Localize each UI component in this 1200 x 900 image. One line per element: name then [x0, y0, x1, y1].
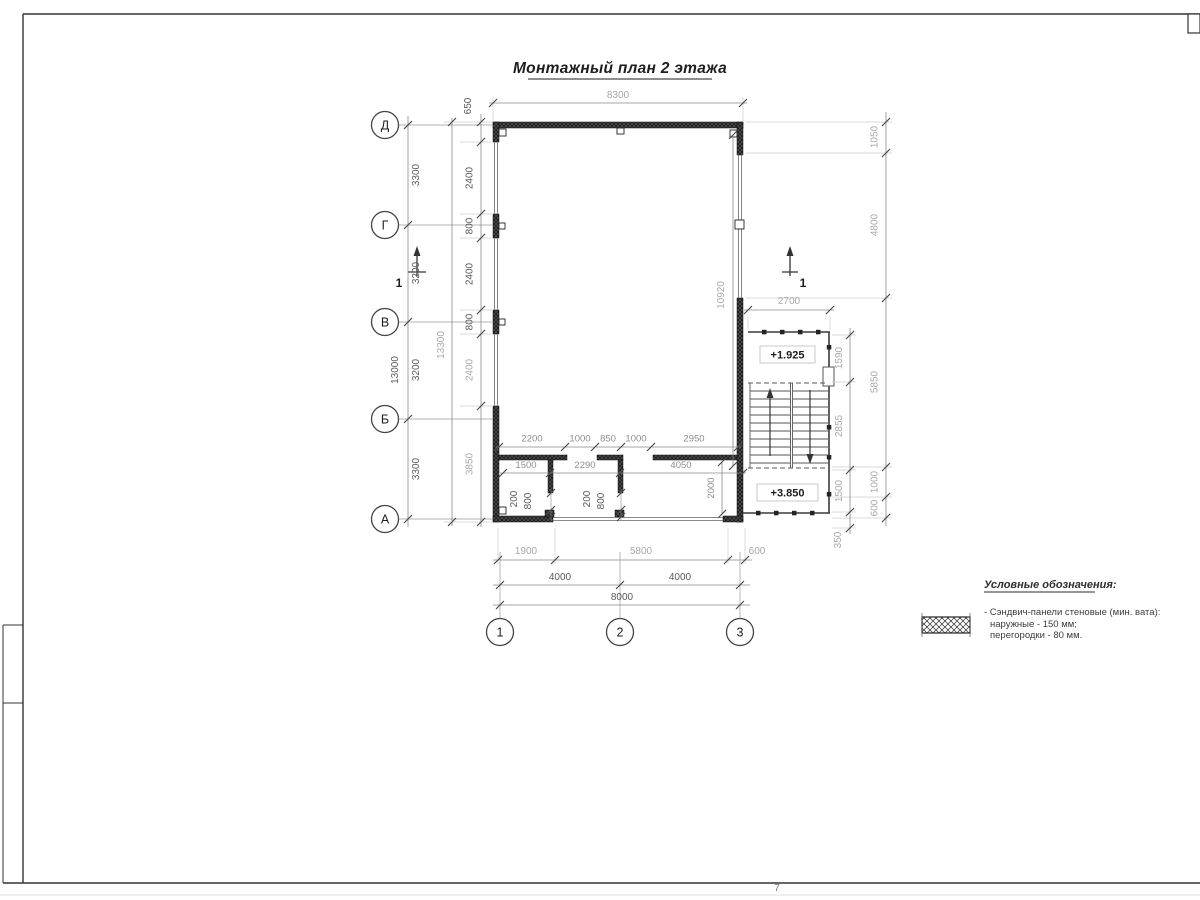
partition-v-right [618, 460, 623, 493]
section-label-left: 1 [396, 276, 403, 290]
dim-stair-350: 350 [833, 531, 844, 548]
drawing-title: Монтажный план 2 этажа [513, 60, 727, 79]
bottom-wall-left [493, 516, 553, 522]
ext-right-outer [746, 122, 892, 518]
dim-seg-2400c: 2400 [465, 358, 476, 381]
section-arrow-head-right [787, 246, 794, 256]
dim-stair-1590: 1590 [834, 346, 845, 369]
dim-stair-1500: 1500 [834, 479, 845, 502]
top-wall [493, 122, 743, 128]
right-wall-lower [737, 298, 743, 522]
dim-int-1000b: 1000 [625, 434, 646, 445]
legend: Условные обозначения: - Сэндвич-панели с… [922, 579, 1160, 641]
dim-right-1050: 1050 [870, 125, 881, 148]
axis-row-v: В [381, 316, 389, 330]
dim-annex-width: 2700 [778, 296, 801, 307]
column-top-right [730, 130, 737, 137]
column-right-wall-mid [735, 220, 744, 229]
dim-bottom-4000b: 4000 [669, 572, 692, 583]
dim-seg-800b: 800 [465, 313, 476, 330]
dim-room-depth-2000: 2000 [706, 477, 717, 498]
bottom-wall-right [723, 516, 743, 522]
dim-seg-2400b: 2400 [465, 262, 476, 285]
axis-row-b: Б [381, 413, 389, 427]
cross-hatch-panel-swatch [922, 617, 970, 633]
frame-margin-boxes [3, 625, 23, 883]
column-bottom-left [499, 507, 506, 514]
dim-bottom-600: 600 [749, 546, 766, 557]
axis-col-2: 2 [617, 626, 624, 640]
legend-line-1: - Сэндвич-панели стеновые (мин. вата): [984, 607, 1160, 618]
legend-line-3: перегородки - 80 мм. [990, 630, 1082, 641]
dim-int-2200: 2200 [521, 434, 542, 445]
dim-axis-dg: 3300 [411, 163, 422, 186]
section-marks: 1 1 [396, 246, 807, 290]
dim-right-5850: 5850 [870, 370, 881, 393]
legend-line-2: наружные - 150 мм; [990, 619, 1077, 630]
stair-annex: +1.925 +3.850 [743, 330, 834, 516]
dim-bottom-1900: 1900 [515, 546, 538, 557]
column-top-left [499, 129, 506, 136]
left-wall-top-return [493, 122, 499, 142]
level-second-floor: +3.850 [771, 488, 805, 500]
page-number: 7 [774, 883, 780, 894]
dim-axis-ba: 3300 [411, 457, 422, 480]
level-landing: +1.925 [771, 350, 805, 362]
dim-door-right-800: 800 [596, 492, 607, 509]
dim-top-width: 8300 [607, 90, 630, 101]
dim-right-4800: 4800 [870, 213, 881, 236]
dim-bottom-5800: 5800 [630, 546, 653, 557]
dim-door-right-200: 200 [582, 490, 593, 507]
column-left-pier-1 [499, 223, 505, 229]
dim-door-left-200: 200 [509, 490, 520, 507]
dim-axis-total: 13000 [390, 356, 401, 384]
axis-row-g: Г [382, 219, 389, 233]
dim-right-600: 600 [870, 499, 881, 516]
axis-col-3: 3 [737, 626, 744, 640]
bottom-wall-glazing [553, 518, 723, 521]
dim-seg-3850: 3850 [465, 452, 476, 475]
dim-axis-gv: 3200 [411, 261, 422, 284]
dim-seg-800a: 800 [465, 217, 476, 234]
section-arrow-head-left [414, 246, 421, 256]
dim-seg-650: 650 [463, 97, 474, 114]
frame-border [3, 14, 1200, 883]
page-title: Монтажный план 2 этажа [513, 60, 727, 77]
section-label-right: 1 [800, 276, 807, 290]
ext-annex-top [748, 316, 830, 330]
dim-bottom-8000: 8000 [611, 592, 634, 603]
axis-col-1: 1 [497, 626, 504, 640]
left-wall-pier-2 [493, 310, 499, 334]
dim-room-4050: 4050 [670, 460, 691, 471]
axis-circles [372, 112, 754, 646]
dim-int-1000a: 1000 [569, 434, 590, 445]
legend-title: Условные обозначения: [984, 579, 1117, 591]
frame-corner-box [1188, 14, 1200, 33]
left-wall-windows [495, 142, 498, 406]
axis-row-a: А [381, 513, 390, 527]
right-wall-top-return [737, 122, 743, 155]
partition-h-2 [597, 455, 623, 460]
dim-right-1000: 1000 [870, 470, 881, 493]
dim-room-1500: 1500 [515, 460, 536, 471]
dimension-ticks [404, 99, 890, 609]
sheet-frame: 7 [0, 14, 1200, 895]
dim-int-850: 850 [600, 434, 616, 445]
dim-axis-vb: 3200 [411, 358, 422, 381]
dim-door-left-800: 800 [523, 492, 534, 509]
stair-down-arrow-head [807, 454, 814, 464]
dim-seg-2400a: 2400 [465, 166, 476, 189]
dim-stair-2855: 2855 [834, 414, 845, 437]
dim-glazing-10920: 10920 [716, 281, 727, 309]
axis-markers: Д Г В Б А 1 2 3 [372, 112, 754, 646]
column-axis-2-top [617, 128, 624, 134]
floor-plan-drawing: 7 Монтажный план 2 этажа [0, 0, 1200, 900]
axis-row-d: Д [381, 119, 390, 133]
dim-bottom-4000a: 4000 [549, 572, 572, 583]
drawing-sheet: 7 Монтажный план 2 этажа [0, 0, 1200, 900]
dim-int-2950: 2950 [683, 434, 704, 445]
stair-up-arrow-head [767, 388, 774, 398]
left-wall-pier-1 [493, 214, 499, 238]
column-left-pier-2 [499, 319, 505, 325]
left-wall-lower [493, 406, 499, 522]
dim-room-2290: 2290 [574, 460, 595, 471]
dim-overall-left: 13300 [436, 331, 447, 359]
partition-v-left [548, 460, 553, 493]
